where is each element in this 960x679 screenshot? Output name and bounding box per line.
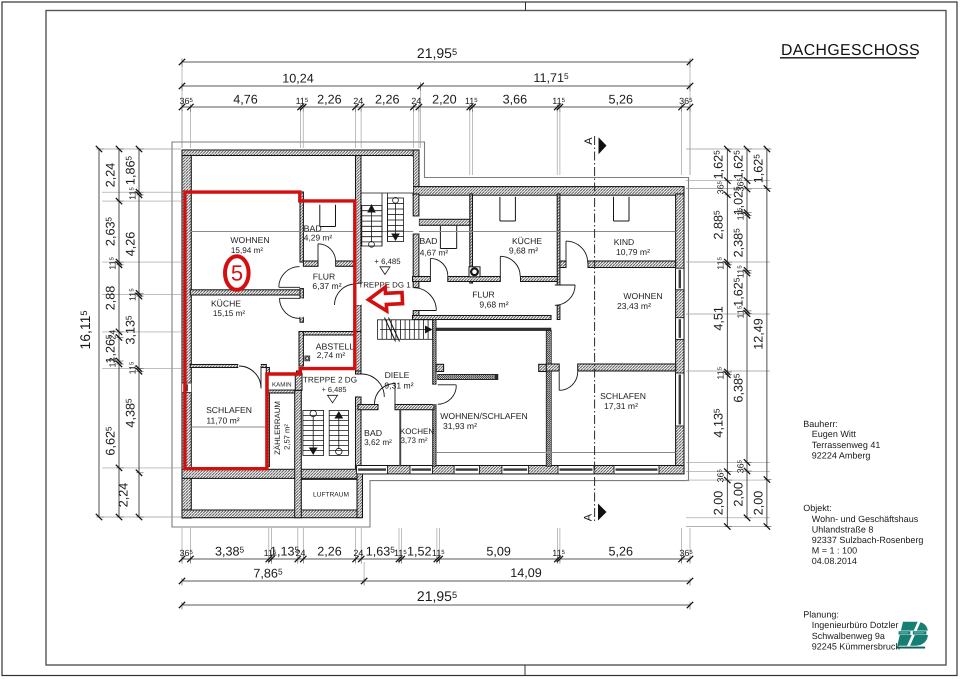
- svg-text:10,24: 10,24: [282, 72, 314, 86]
- svg-text:24: 24: [353, 96, 363, 106]
- svg-text:1,52: 1,52: [407, 545, 432, 559]
- svg-text:Objekt:: Objekt:: [803, 503, 832, 513]
- svg-text:2,26: 2,26: [317, 93, 342, 107]
- svg-text:M = 1 : 100: M = 1 : 100: [812, 546, 857, 556]
- svg-text:4,67 m²: 4,67 m²: [420, 247, 449, 257]
- svg-text:+ 6,485: + 6,485: [374, 257, 401, 266]
- svg-text:4,51: 4,51: [712, 306, 726, 331]
- svg-text:12: 12: [108, 357, 118, 367]
- svg-text:12,49: 12,49: [751, 318, 765, 350]
- svg-text:92245 Kümmersbruck: 92245 Kümmersbruck: [812, 642, 901, 652]
- svg-text:2,26: 2,26: [317, 545, 342, 559]
- svg-text:24: 24: [353, 548, 363, 558]
- svg-text:WOHNEN: WOHNEN: [230, 235, 269, 245]
- svg-text:TREPPE 2 DG: TREPPE 2 DG: [303, 375, 357, 384]
- svg-text:2,00: 2,00: [751, 491, 765, 516]
- svg-text:3,62 m²: 3,62 m²: [364, 438, 392, 447]
- svg-text:2,24: 2,24: [104, 163, 118, 188]
- svg-text:2,24: 2,24: [117, 483, 131, 508]
- svg-text:04.08.2014: 04.08.2014: [812, 556, 857, 566]
- svg-text:KOCHEN: KOCHEN: [400, 427, 434, 436]
- svg-text:2,26: 2,26: [375, 93, 400, 107]
- svg-text:10,79 m²: 10,79 m²: [616, 247, 650, 257]
- svg-text:6,37 m²: 6,37 m²: [312, 281, 341, 291]
- svg-text:KIND: KIND: [614, 237, 635, 247]
- svg-text:Eugen Witt: Eugen Witt: [812, 429, 857, 439]
- svg-text:KÜCHE: KÜCHE: [512, 236, 542, 246]
- svg-text:14,09: 14,09: [510, 566, 542, 580]
- svg-text:23,43 m²: 23,43 m²: [617, 301, 651, 311]
- svg-text:5,26: 5,26: [609, 545, 634, 559]
- svg-text:11,70 m²: 11,70 m²: [206, 416, 239, 426]
- svg-text:Bauherr:: Bauherr:: [803, 419, 838, 429]
- svg-text:Schwalbenweg 9a: Schwalbenweg 9a: [812, 631, 885, 641]
- svg-text:15,94 m²: 15,94 m²: [231, 246, 264, 255]
- svg-text:Wohn- und Geschäftshaus: Wohn- und Geschäftshaus: [812, 514, 919, 524]
- svg-text:3,73 m²: 3,73 m²: [400, 436, 427, 445]
- svg-text:21,955: 21,955: [417, 45, 457, 61]
- svg-text:5: 5: [231, 261, 243, 286]
- svg-text:16,115: 16,115: [77, 310, 93, 349]
- svg-text:5,09: 5,09: [486, 545, 511, 559]
- svg-text:21,955: 21,955: [417, 588, 457, 604]
- svg-text:15,15 m²: 15,15 m²: [213, 309, 246, 318]
- svg-text:92337 Sulzbach-Rosenberg: 92337 Sulzbach-Rosenberg: [812, 535, 924, 545]
- svg-text:BAD: BAD: [419, 236, 437, 246]
- svg-text:+ 6,485: + 6,485: [322, 385, 347, 394]
- svg-text:2,20: 2,20: [432, 93, 457, 107]
- svg-text:17,31 m²: 17,31 m²: [604, 401, 638, 411]
- svg-text:2,74 m²: 2,74 m²: [317, 350, 346, 360]
- svg-text:3,66: 3,66: [503, 93, 528, 107]
- svg-text:ZÄHLERRAUM: ZÄHLERRAUM: [273, 401, 282, 455]
- svg-text:Ingenieurbüro Dotzler: Ingenieurbüro Dotzler: [812, 620, 899, 630]
- svg-text:4,76: 4,76: [233, 93, 258, 107]
- svg-text:11,715: 11,715: [533, 71, 569, 85]
- svg-text:BAD: BAD: [364, 428, 382, 438]
- svg-text:9,31 m²: 9,31 m²: [384, 381, 413, 391]
- svg-text:WOHNEN/SCHLAFEN: WOHNEN/SCHLAFEN: [440, 411, 527, 421]
- svg-text:SCHLAFEN: SCHLAFEN: [600, 391, 646, 401]
- svg-text:2,88: 2,88: [104, 286, 118, 311]
- svg-text:2,57 m²: 2,57 m²: [283, 424, 292, 450]
- svg-text:4,26: 4,26: [124, 232, 138, 257]
- svg-text:Planung:: Planung:: [803, 609, 839, 619]
- svg-text:Uhlandstraße 8: Uhlandstraße 8: [812, 525, 874, 535]
- svg-text:A: A: [582, 513, 594, 521]
- svg-text:LUFTRAUM: LUFTRAUM: [313, 492, 349, 499]
- svg-text:24: 24: [295, 548, 305, 558]
- svg-text:24: 24: [411, 96, 421, 106]
- svg-text:KAMIN: KAMIN: [272, 382, 292, 389]
- svg-text:2,00: 2,00: [712, 491, 726, 516]
- svg-text:DACHGESCHOSS: DACHGESCHOSS: [781, 42, 920, 59]
- svg-text:KÜCHE: KÜCHE: [211, 299, 241, 309]
- svg-text:SCHLAFEN: SCHLAFEN: [206, 405, 252, 415]
- svg-text:WOHNEN: WOHNEN: [623, 291, 662, 301]
- svg-text:9,68 m²: 9,68 m²: [509, 246, 538, 256]
- svg-text:92224 Amberg: 92224 Amberg: [812, 450, 871, 460]
- svg-text:2,00: 2,00: [732, 482, 746, 507]
- svg-text:5,26: 5,26: [609, 93, 634, 107]
- svg-text:A: A: [583, 137, 595, 145]
- svg-text:9,68 m²: 9,68 m²: [479, 300, 508, 310]
- svg-text:DIELE: DIELE: [385, 370, 410, 380]
- svg-text:31,93 m²: 31,93 m²: [443, 421, 477, 431]
- svg-text:4,29 m²: 4,29 m²: [304, 232, 333, 242]
- svg-text:Terrassenweg 41: Terrassenweg 41: [812, 440, 881, 450]
- svg-text:FLUR: FLUR: [472, 290, 494, 300]
